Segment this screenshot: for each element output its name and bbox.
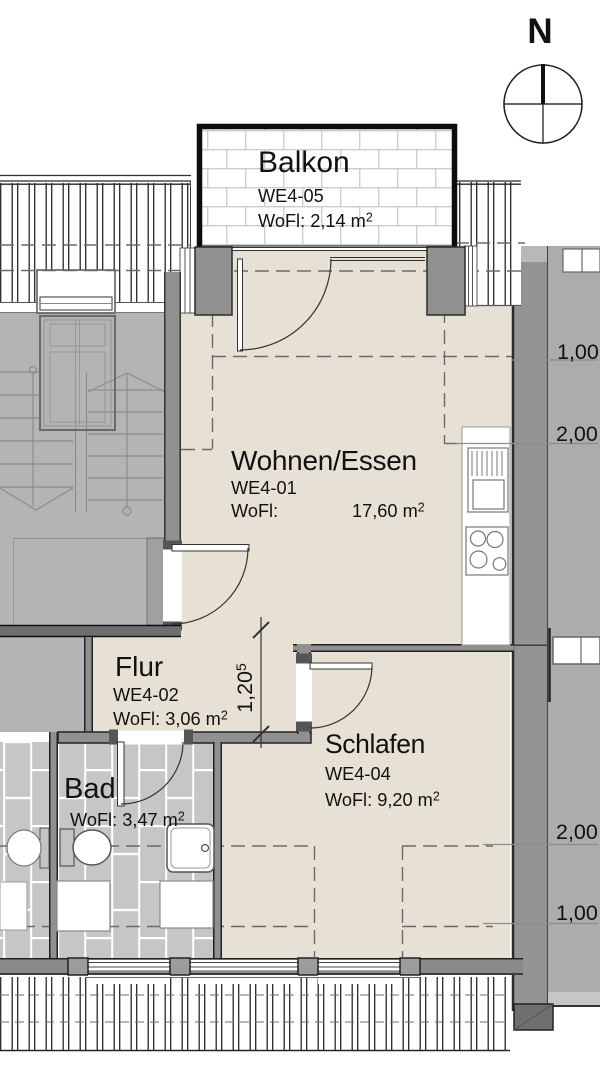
svg-text:Flur: Flur (115, 651, 163, 682)
svg-text:2,00: 2,00 (556, 422, 598, 446)
svg-text:WoFl: 2,14 m2: WoFl: 2,14 m2 (258, 211, 373, 232)
svg-text:Bad: Bad (64, 773, 116, 805)
svg-text:Wohnen/Essen: Wohnen/Essen (231, 445, 417, 476)
svg-text:2,00: 2,00 (556, 820, 598, 844)
svg-text:WoFl: 3,06 m2: WoFl: 3,06 m2 (113, 709, 228, 730)
svg-text:WoFl:: WoFl: (231, 501, 278, 521)
svg-text:WE4-02: WE4-02 (113, 685, 179, 705)
svg-text:WE4-05: WE4-05 (258, 186, 324, 206)
svg-text:17,60 m2: 17,60 m2 (352, 501, 425, 522)
svg-text:Balkon: Balkon (258, 146, 350, 179)
svg-text:1,00: 1,00 (556, 901, 598, 925)
svg-text:WE4-04: WE4-04 (325, 764, 391, 784)
svg-text:WE4-01: WE4-01 (231, 478, 297, 498)
svg-text:N: N (527, 12, 552, 51)
svg-text:Schlafen: Schlafen (325, 729, 425, 759)
svg-text:WoFl: 3,47 m2: WoFl: 3,47 m2 (70, 810, 185, 831)
svg-text:1,00: 1,00 (557, 340, 599, 364)
svg-text:WoFl: 9,20 m2: WoFl: 9,20 m2 (325, 790, 440, 811)
